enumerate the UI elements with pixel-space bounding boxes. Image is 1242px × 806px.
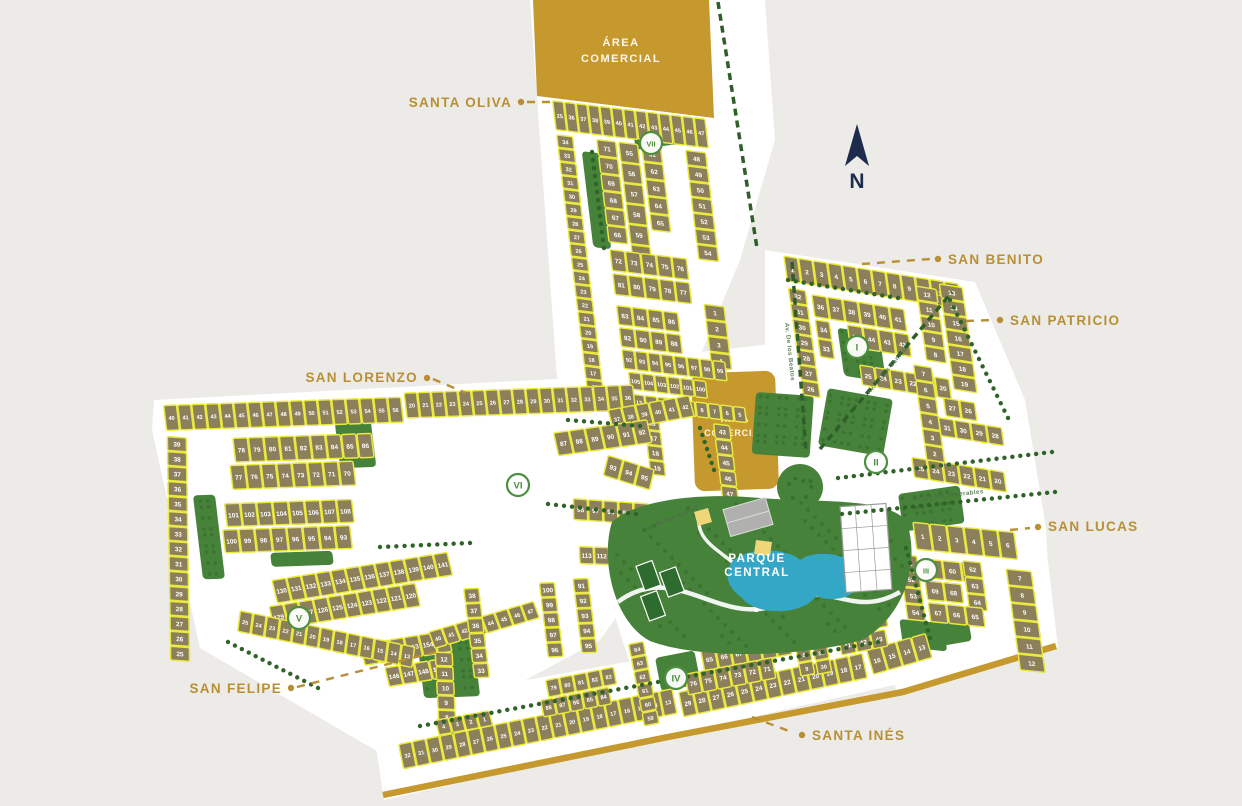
label-leader-dot	[424, 375, 430, 381]
neighborhood-name: SAN LORENZO	[305, 370, 418, 385]
lot-number: 45	[238, 413, 245, 419]
lot-number: 95	[665, 362, 672, 369]
lot-number: 31	[418, 750, 425, 757]
lot-number: 63	[636, 661, 643, 668]
lot-number: 33	[477, 668, 485, 675]
lot-number: 31	[175, 561, 183, 568]
lot-number: 63	[652, 186, 660, 194]
lot-number: 50	[696, 187, 704, 195]
north-arrow: N	[845, 124, 869, 193]
lot-number: 26	[489, 401, 496, 407]
lot-number: 82	[300, 445, 308, 452]
lot-number: 25	[577, 262, 584, 269]
lot-number: 94	[583, 628, 591, 635]
lot-number: 69	[607, 180, 615, 188]
lot-number: 96	[551, 647, 559, 654]
lot-number: 100	[542, 587, 554, 594]
lot-number: 112	[596, 553, 607, 560]
lot-number: 72	[614, 258, 622, 266]
label-leader-line	[862, 259, 930, 264]
svg-text:IV: IV	[672, 673, 682, 684]
neighborhood-label-santa-ines: SANTA INÉS	[752, 717, 905, 743]
lot-number: 79	[550, 685, 557, 692]
lot-number: 100	[696, 387, 706, 394]
lot-number: 20	[408, 403, 415, 409]
lot-number: 37	[470, 608, 478, 615]
lot-number: 89	[655, 339, 663, 347]
lot-number: 97	[276, 537, 284, 544]
lot-number: 85	[652, 317, 660, 325]
lot-number: 66	[614, 232, 622, 240]
lot-number: 18	[588, 357, 595, 364]
lot-number: 22	[435, 402, 442, 408]
lot-number: 79	[253, 447, 261, 454]
lot-number: 88	[545, 705, 552, 712]
lot-number: 73	[297, 472, 305, 479]
lot-number: 93	[581, 613, 589, 620]
lot-number: 67	[612, 215, 620, 223]
lot-number: 46	[724, 475, 732, 483]
svg-text:VI: VI	[514, 480, 523, 491]
lot-number: 75	[661, 264, 669, 272]
lot-number: 31	[557, 398, 564, 404]
lot-number: 36	[568, 115, 575, 122]
lot-number: 56	[628, 171, 636, 179]
area-comercial-top-label-1: ÁREA	[602, 36, 639, 49]
lot-number: 80	[269, 446, 277, 453]
lot-number: 30	[820, 664, 827, 671]
lot-number: 99	[717, 369, 724, 376]
lot-number: 45	[674, 128, 681, 135]
sector-marker-v: V	[288, 607, 310, 629]
lot-number: 36	[472, 623, 480, 630]
lot-number: 88	[670, 341, 678, 349]
lot-number: 86	[362, 443, 370, 450]
neighborhood-label-san-benito: SAN BENITO	[862, 252, 1044, 267]
sector-marker-vii: VII	[640, 132, 662, 154]
lot-number: 60	[644, 702, 651, 709]
lot-number: 42	[196, 415, 203, 421]
lot-number: 48	[693, 156, 701, 164]
lot-number: 71	[328, 471, 336, 478]
lot-number: 83	[621, 313, 629, 321]
lot-number: 76	[676, 265, 684, 273]
lot-number: 75	[266, 473, 274, 480]
lot-number: 76	[250, 474, 258, 481]
lot-number: 38	[592, 118, 599, 125]
neighborhood-name: SAN BENITO	[948, 252, 1044, 267]
lot-number: 68	[609, 197, 617, 205]
lot-number: 59	[635, 232, 643, 240]
neighborhood-name: SAN PATRICIO	[1010, 313, 1120, 328]
lot-number: 43	[210, 414, 217, 420]
lot-number: 22	[582, 303, 589, 310]
lot-number: 35	[174, 501, 182, 508]
lot-number: 72	[312, 472, 320, 479]
lot-number: 100	[226, 538, 238, 545]
svg-text:III: III	[923, 566, 929, 575]
lot-number: 103	[657, 382, 667, 389]
lot-number: 113	[581, 553, 592, 560]
lot-number: 18	[652, 450, 660, 458]
lot-number: 28	[572, 221, 579, 228]
svg-text:II: II	[873, 457, 878, 468]
label-leader-dot	[288, 685, 294, 691]
lot-number: 85	[586, 697, 593, 704]
lot-number: 95	[308, 536, 316, 543]
roundabout-trees	[804, 495, 808, 499]
lot-number: 29	[570, 208, 577, 215]
lot-number: 25	[556, 114, 563, 121]
lot-number: 90	[639, 337, 647, 345]
lot-number: 42	[639, 124, 646, 131]
lot-number: 86	[668, 319, 676, 327]
lot-number: 93	[639, 359, 646, 366]
lot-number: 52	[336, 410, 343, 416]
lot-number: 96	[678, 364, 685, 371]
lot-number: 45	[722, 460, 730, 468]
lot-number: 48	[280, 412, 287, 418]
lot-number: 54	[704, 250, 712, 258]
lot-number: 58	[633, 212, 641, 220]
lot-number: 98	[547, 617, 555, 624]
lot-number: 87	[559, 702, 566, 709]
lot-number: 29	[530, 399, 537, 405]
lot-number: 34	[174, 516, 182, 523]
lot-number: 36	[174, 486, 182, 493]
lot-number: 105	[292, 510, 304, 517]
lot-number: 30	[543, 399, 550, 405]
lot-number: 39	[173, 441, 181, 448]
lot-number: 30	[431, 747, 438, 754]
lot-number: 35	[474, 638, 482, 645]
neighborhood-name: SAN LUCAS	[1048, 519, 1138, 534]
lot-number: 32	[570, 398, 577, 404]
lot-number: 96	[292, 536, 300, 543]
sector-marker-vi: VI	[507, 474, 529, 496]
sector-marker-ii: II	[865, 451, 887, 473]
lot-number: 97	[691, 365, 698, 372]
lot-number: 51	[698, 203, 706, 211]
masterplan-stage: ÁREA COMERCIAL ÁREA COMERCIAL 2536373839…	[0, 0, 1242, 806]
lot-number: 50	[308, 411, 315, 417]
lot-number: 49	[294, 411, 301, 417]
lot-number: 59	[647, 716, 654, 723]
lot-number: 81	[578, 680, 585, 687]
lot-number: 17	[590, 371, 597, 378]
lot-number: 10	[442, 685, 450, 692]
lot-number: 93	[340, 535, 348, 542]
roundabout-trees	[809, 479, 813, 483]
lot-number: 26	[176, 636, 184, 643]
lot-number: 21	[422, 403, 429, 409]
masterplan-map: ÁREA COMERCIAL ÁREA COMERCIAL 2536373839…	[0, 0, 1242, 806]
lot-number: 19	[653, 465, 661, 473]
parque-central-label-2: CENTRAL	[724, 567, 789, 579]
lot-number: 19	[582, 717, 589, 724]
lot-number: 71	[603, 146, 611, 154]
lot-number: 46	[686, 129, 693, 136]
lot-number: 61	[642, 688, 649, 695]
neighborhood-name: SANTA INÉS	[812, 728, 905, 743]
lot-number: 77	[679, 289, 687, 297]
lot-number: 52	[700, 219, 708, 227]
lot-number: 27	[573, 235, 580, 242]
lot-number: 26	[486, 736, 493, 743]
neighborhood-label-santa-oliva: SANTA OLIVA	[409, 95, 556, 110]
lot-number: 12	[440, 656, 448, 663]
lot-number: 43	[719, 429, 727, 437]
lot-number: 94	[324, 535, 332, 542]
lot-number: 81	[617, 282, 625, 290]
green-area	[818, 388, 893, 457]
lot-number: 19	[587, 344, 594, 351]
lot-number: 41	[627, 122, 634, 129]
lot-number: 33	[564, 153, 571, 160]
lot-number: 55	[625, 150, 633, 158]
lot-number: 47	[698, 131, 705, 138]
label-leader-dot	[935, 256, 941, 262]
lot-number: 82	[591, 677, 598, 684]
lot-number: 27	[503, 400, 510, 406]
lot-number: 29	[445, 745, 452, 752]
lot-number: 49	[695, 172, 703, 180]
lot-number: 22	[541, 725, 548, 732]
svg-text:I: I	[856, 342, 859, 353]
north-label: N	[849, 170, 864, 193]
lot-number: 83	[605, 674, 612, 681]
lot-number: 74	[645, 262, 653, 270]
lot-number: 20	[569, 719, 576, 726]
lot-number: 33	[175, 531, 183, 538]
lot-number: 18	[596, 714, 603, 721]
lot-number: 95	[585, 643, 593, 650]
lot-number: 30	[175, 576, 183, 583]
lot-number: 46	[252, 413, 259, 419]
lot-number: 77	[235, 474, 243, 481]
roundabout-trees	[793, 477, 797, 481]
lot-number: 27	[176, 621, 184, 628]
lot-number: 85	[346, 443, 354, 450]
lot-number: 47	[266, 412, 273, 418]
roundabout-trees	[809, 485, 813, 489]
lot-number: 98	[704, 367, 711, 374]
lot-number: 28	[516, 400, 523, 406]
lot-number: 25	[176, 651, 184, 658]
lot-number: 11	[441, 671, 449, 678]
lot-number: 70	[605, 163, 613, 171]
lot-number: 102	[244, 512, 256, 519]
lot-number: 23	[580, 289, 587, 296]
label-leader-dot	[997, 317, 1003, 323]
lot-number: 99	[546, 602, 554, 609]
parque-central: PARQUE CENTRAL	[608, 496, 912, 654]
lot-number: 38	[174, 456, 182, 463]
lot-number: 20	[585, 330, 592, 337]
lot-number: 73	[630, 260, 638, 268]
lot-number: 44	[720, 444, 728, 452]
lot-number: 34	[475, 653, 483, 660]
lot-number: 101	[228, 512, 240, 519]
lot-number: 32	[404, 753, 411, 760]
lot-number: 17	[610, 711, 617, 718]
roundabout-trees	[791, 496, 795, 500]
lot-number: 37	[580, 117, 587, 124]
green-area	[270, 551, 334, 567]
lot-number: 23	[527, 728, 534, 735]
lot-number: 78	[664, 288, 672, 296]
lot-number: 104	[276, 511, 288, 518]
label-leader-dot	[518, 99, 524, 105]
lot-number: 62	[639, 674, 646, 681]
lot-number: 32	[565, 167, 572, 174]
lot-number: 26	[575, 249, 582, 256]
label-leader-dot	[1035, 524, 1041, 530]
sector-marker-iii: III	[915, 559, 937, 581]
lot-number: 53	[702, 234, 710, 242]
lot-number: 56	[392, 408, 399, 414]
lot-number: 97	[549, 632, 557, 639]
lot-number: 35	[611, 396, 618, 402]
roundabout-trees	[801, 479, 805, 483]
lot-number: 64	[654, 203, 662, 211]
lot-number: 40	[168, 416, 175, 422]
lot-number: 62	[650, 168, 658, 176]
lot-number: 28	[176, 606, 184, 613]
lot-number: 92	[626, 358, 633, 365]
lot-number: 106	[308, 509, 320, 516]
lot-number: 53	[350, 409, 357, 415]
lot-number: 92	[579, 598, 587, 605]
lot-number: 102	[670, 384, 680, 391]
lot-number: 107	[324, 509, 336, 516]
lot-number: 36	[624, 396, 631, 402]
lot-number: 101	[683, 385, 693, 392]
parque-central-label-1: PARQUE	[728, 553, 785, 565]
lot-number: 55	[378, 408, 385, 414]
lot-number: 78	[238, 447, 246, 454]
lot-number: 16	[624, 708, 631, 715]
north-arrow-icon	[845, 124, 869, 166]
school-building-plan	[840, 504, 892, 593]
lot-number: 13	[665, 700, 672, 707]
lot-number: 28	[459, 742, 466, 749]
lot-number: 40	[615, 121, 622, 128]
svg-text:VII: VII	[646, 139, 655, 148]
lot-number: 80	[564, 682, 571, 689]
lot-number: 41	[182, 415, 189, 421]
lot-number: 82	[624, 335, 632, 343]
lot-number: 84	[637, 315, 645, 323]
lot-number: 29	[176, 591, 184, 598]
sector-marker-iv: IV	[665, 667, 687, 689]
lot-number: 21	[583, 317, 590, 324]
lot-number: 25	[476, 401, 483, 407]
lot-number: 21	[555, 722, 562, 729]
lot-number: 57	[630, 191, 638, 199]
lot-number: 80	[633, 284, 641, 292]
label-leader-dot	[799, 732, 805, 738]
lot-number: 32	[175, 546, 183, 553]
lot-number: 86	[573, 700, 580, 707]
lot-number: 81	[284, 446, 292, 453]
lot-number: 37	[174, 471, 182, 478]
lot-number: 99	[244, 538, 252, 545]
lot-number: 83	[315, 445, 323, 452]
lot-number: 98	[260, 537, 268, 544]
lot-number: 51	[322, 410, 329, 416]
lot-number: 103	[260, 511, 272, 518]
lot-number: 25	[500, 733, 507, 740]
sector-marker-i: I	[846, 336, 868, 358]
lot-number: 79	[648, 286, 656, 294]
svg-text:V: V	[296, 613, 303, 624]
roundabout-trees	[787, 482, 791, 486]
lot-number: 38	[468, 593, 476, 600]
lot-number: 65	[657, 220, 665, 228]
lot-number: 31	[567, 181, 574, 188]
lot-number: 23	[449, 402, 456, 408]
lot-number: 74	[281, 473, 289, 480]
lot-number: 30	[569, 194, 576, 201]
neighborhood-name: SAN FELIPE	[189, 681, 282, 696]
lot-number: 39	[604, 119, 611, 126]
neighborhood-name: SANTA OLIVA	[409, 95, 512, 110]
lot-number: 33	[584, 397, 591, 403]
lot-number: 70	[343, 471, 351, 478]
lot-number: 43	[651, 125, 658, 132]
area-comercial-top-label-2: COMERCIAL	[581, 53, 661, 65]
lot-number: 27	[473, 739, 480, 746]
lot-number: 108	[340, 508, 352, 515]
lot-number: 84	[331, 444, 339, 451]
lot-number: 91	[577, 583, 585, 590]
